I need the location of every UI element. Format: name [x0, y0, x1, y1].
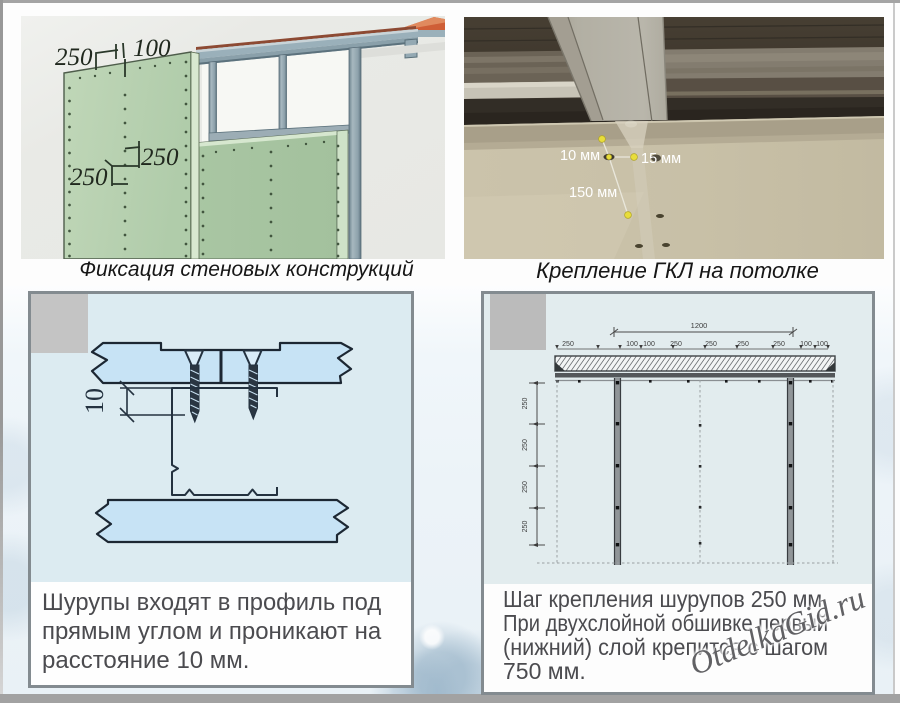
svg-text:250: 250 — [522, 521, 529, 533]
svg-text:250: 250 — [737, 341, 749, 348]
svg-text:100: 100 — [626, 341, 638, 348]
svg-text:250: 250 — [70, 164, 108, 191]
svg-text:250: 250 — [522, 439, 529, 451]
svg-text:1200: 1200 — [691, 321, 708, 330]
svg-text:100: 100 — [816, 341, 828, 348]
svg-text:100: 100 — [643, 341, 655, 348]
svg-text:250: 250 — [562, 341, 574, 348]
svg-text:250: 250 — [141, 144, 179, 171]
svg-text:100: 100 — [800, 341, 812, 348]
svg-text:250: 250 — [522, 481, 529, 493]
svg-text:250: 250 — [705, 341, 717, 348]
svg-text:250: 250 — [522, 398, 529, 410]
svg-text:10: 10 — [80, 388, 109, 414]
svg-text:10 мм: 10 мм — [560, 148, 600, 164]
svg-text:100: 100 — [133, 35, 171, 62]
svg-text:250: 250 — [773, 341, 785, 348]
svg-text:250: 250 — [55, 44, 93, 71]
svg-text:150 мм: 150 мм — [569, 185, 617, 201]
svg-text:250: 250 — [670, 341, 682, 348]
svg-text:15 мм: 15 мм — [641, 151, 681, 167]
